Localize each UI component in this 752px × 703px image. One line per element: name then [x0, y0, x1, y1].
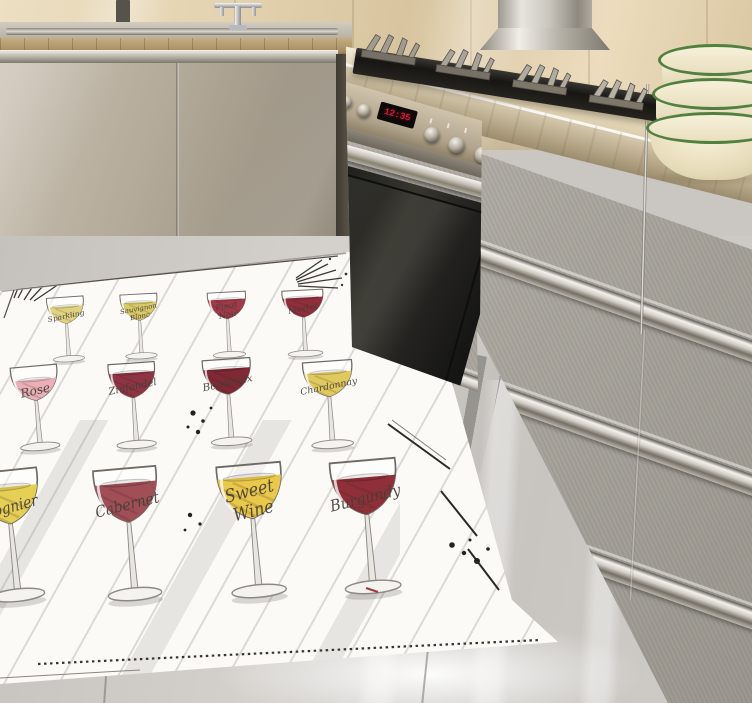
- sink-trough: [6, 28, 338, 35]
- metal-pot-base: [480, 28, 610, 50]
- built-in-oven: 12:35: [344, 72, 482, 398]
- oven-knob: [356, 103, 372, 119]
- oven-knob: [423, 125, 441, 143]
- oven-knob: [447, 135, 467, 155]
- faucet-neck: [235, 6, 241, 26]
- faucet: [208, 0, 268, 32]
- stacked-bowls: [640, 24, 752, 174]
- island-metal-rail: [0, 50, 338, 63]
- oven-panel-tick: [429, 118, 432, 123]
- faucet-handle: [220, 7, 224, 16]
- oven-panel-tick: [464, 128, 467, 133]
- island-door-panels: [0, 63, 338, 244]
- kitchen-scene: TypesofWINE? Sparkling: [0, 0, 752, 703]
- faucet-base: [229, 25, 247, 30]
- oven-panel-tick: [447, 123, 450, 128]
- faucet-handle: [252, 7, 256, 16]
- oven-clock-display: 12:35: [377, 101, 418, 129]
- wall-object: [116, 0, 130, 23]
- metal-pot: [498, 0, 592, 30]
- island-cabinet: [0, 50, 338, 256]
